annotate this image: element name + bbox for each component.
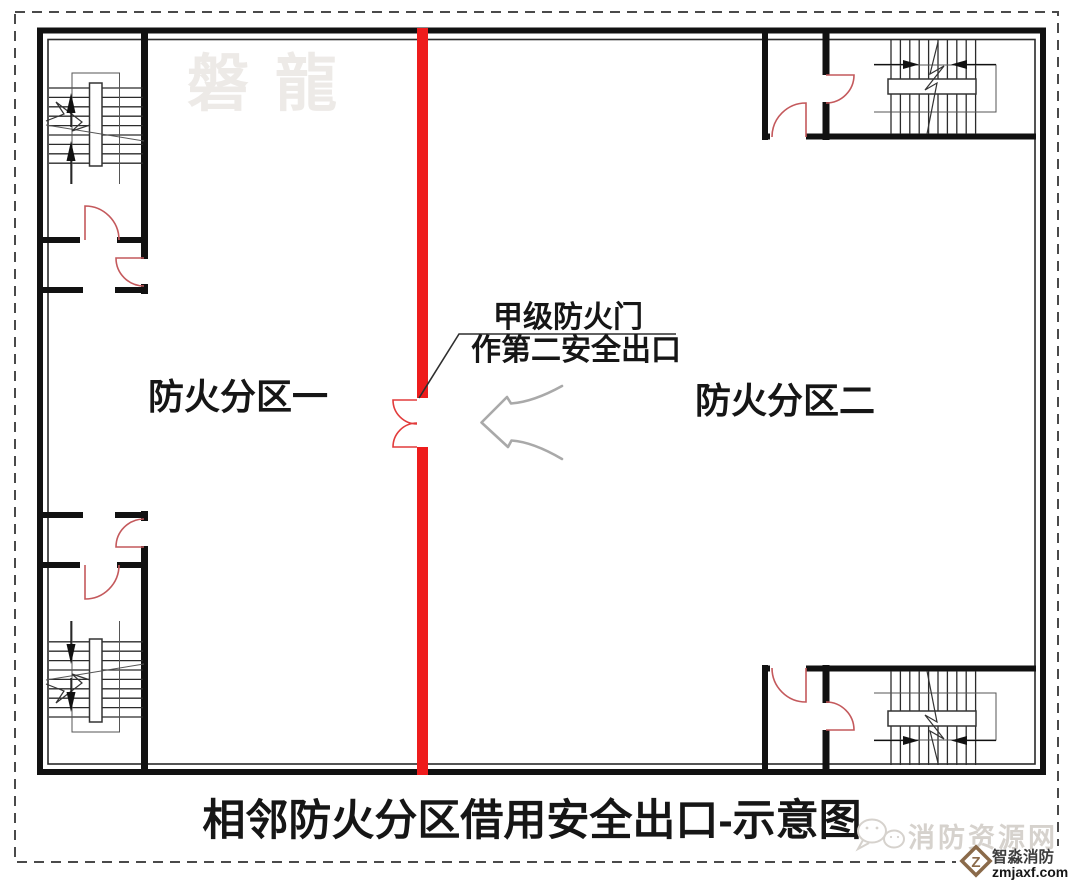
footer-watermark: 消防资源网 Z 智淼消防 zmjaxf.com	[858, 820, 1068, 881]
fire-door-symbol	[393, 400, 417, 447]
brand-domain: zmjaxf.com	[992, 864, 1068, 880]
brand-logo-letter: Z	[971, 854, 980, 871]
floor-plan-image: 磐龍	[0, 0, 1080, 882]
stair-bottom-right	[762, 665, 1036, 775]
stair-bottom-left	[43, 511, 148, 775]
stair-top-left	[43, 30, 148, 294]
door-note-line1: 甲级防火门	[493, 301, 643, 334]
fire-wall	[417, 28, 428, 775]
stair-top-right	[762, 30, 1036, 140]
door-note-line2: 作第二安全出口	[471, 333, 681, 367]
zone-left-label: 防火分区一	[148, 376, 328, 417]
guide-arrow-icon	[482, 386, 563, 459]
zone-right-label: 防火分区二	[695, 380, 875, 421]
watermark-top-text: 磐龍	[187, 50, 363, 119]
diagram-title: 相邻防火分区借用安全出口-示意图	[202, 796, 861, 845]
screenshot-root: 磐龍	[0, 0, 1080, 882]
wechat-icon	[858, 820, 904, 850]
